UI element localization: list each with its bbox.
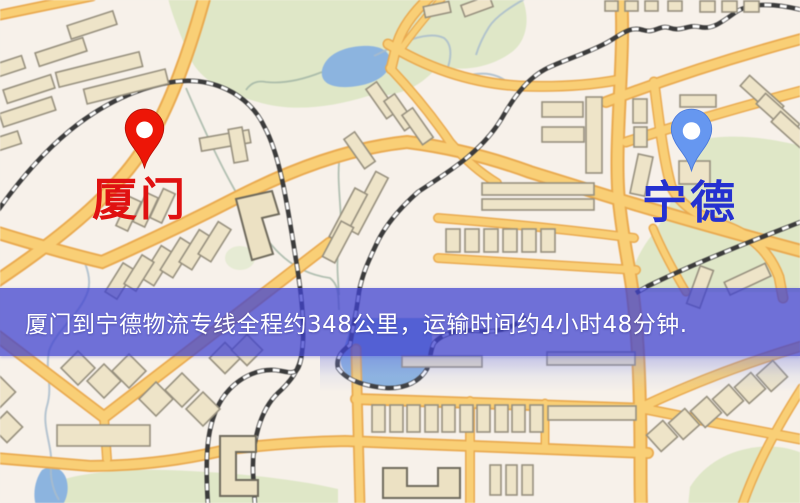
origin-city-label: 厦门 <box>92 177 188 222</box>
origin-pin[interactable] <box>122 107 167 170</box>
destination-pin-icon <box>668 107 715 173</box>
origin-pin-icon <box>122 107 167 170</box>
destination-city-label: 宁德 <box>642 180 738 225</box>
route-info-banner: 厦门到宁德物流专线全程约348公里，运输时间约4小时48分钟. <box>0 288 800 356</box>
logistics-route-map: 厦门 宁德 厦门到宁德物流专线全程约348公里，运输时间约4小时48分钟. <box>0 0 800 503</box>
map-background <box>0 0 800 503</box>
route-info-text: 厦门到宁德物流专线全程约348公里，运输时间约4小时48分钟. <box>0 305 688 339</box>
destination-pin[interactable] <box>668 107 715 173</box>
